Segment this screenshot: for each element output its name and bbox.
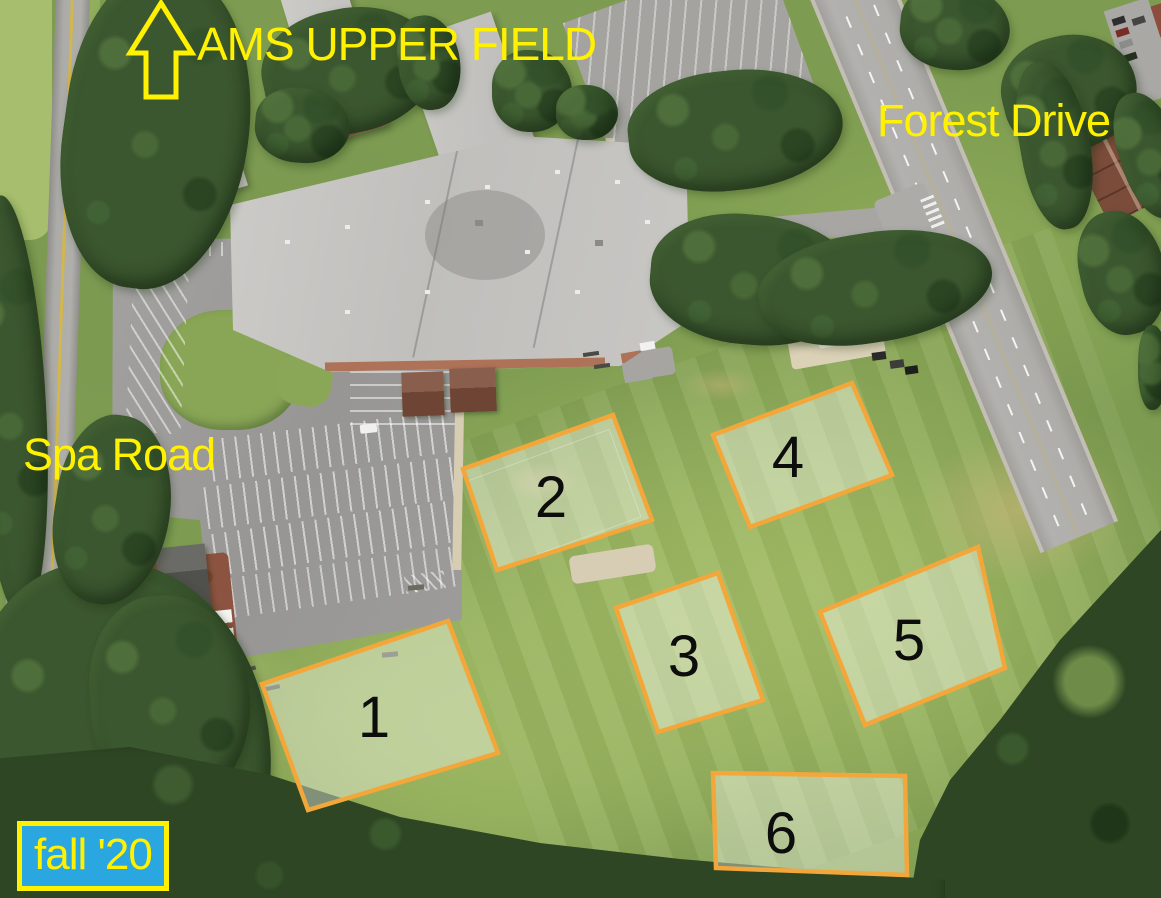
field-number-5: 5: [893, 608, 925, 673]
field-zone-3: 3: [616, 573, 763, 732]
field-zone-4: 4: [713, 383, 892, 527]
road-label-forest-drive: Forest Drive: [877, 97, 1110, 144]
field-number-3: 3: [668, 624, 700, 689]
field-outline-6: [713, 773, 907, 875]
road-label-spa-road: Spa Road: [23, 431, 215, 478]
season-badge: fall '20: [17, 821, 169, 891]
up-arrow-icon: [130, 3, 192, 97]
field-number-2: 2: [535, 465, 567, 530]
field-number-6: 6: [765, 801, 797, 866]
field-number-4: 4: [772, 425, 804, 490]
field-zone-2: 2: [463, 415, 652, 570]
field-number-1: 1: [358, 685, 390, 750]
field-zone-6: 6: [713, 773, 907, 875]
upper-field-label: AMS UPPER FIELD: [197, 20, 596, 68]
satellite-map: 1 2 3 4 5 6 AMS UPPER FIELD Forest Drive…: [0, 0, 1161, 898]
field-zone-5: 5: [820, 547, 1005, 725]
field-zone-1: 1: [262, 621, 498, 810]
